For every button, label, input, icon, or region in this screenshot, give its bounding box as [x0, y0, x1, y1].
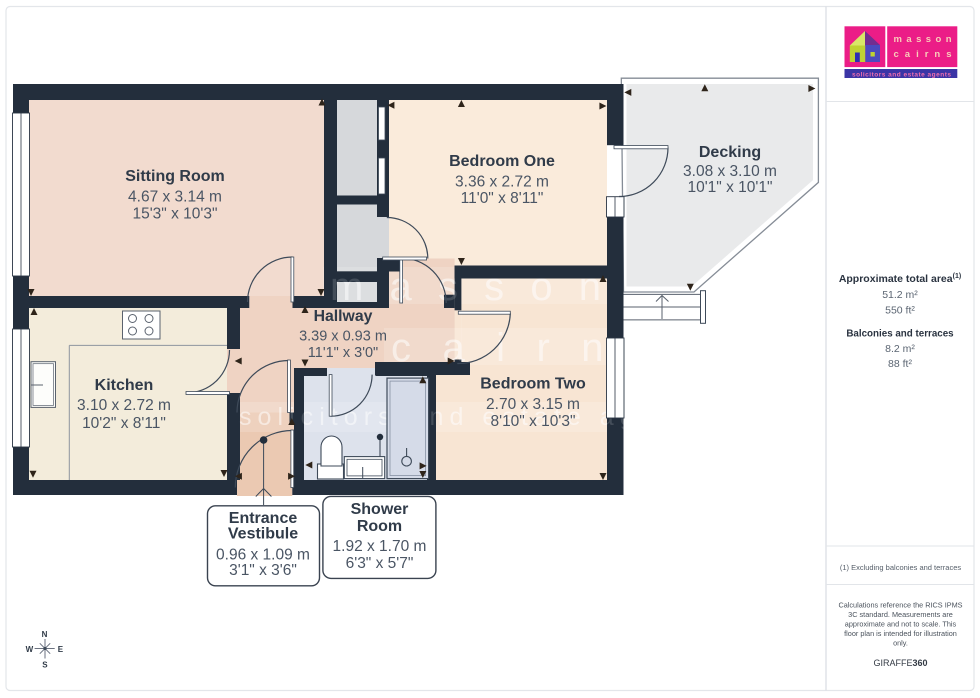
svg-text:Vestibule: Vestibule: [228, 526, 298, 543]
svg-text:Shower: Shower: [351, 501, 409, 518]
svg-text:6'3" x 5'7": 6'3" x 5'7": [346, 555, 414, 572]
svg-text:solicitors and estate agents: solicitors and estate agents: [852, 71, 951, 78]
svg-text:Decking: Decking: [699, 144, 761, 161]
svg-text:W: W: [26, 645, 34, 654]
svg-text:3'1" x 3'6": 3'1" x 3'6": [229, 562, 297, 579]
svg-text:11'0" x 8'11": 11'0" x 8'11": [461, 190, 544, 207]
svg-text:550 ft²: 550 ft²: [885, 305, 915, 317]
svg-text:51.2 m²: 51.2 m²: [882, 289, 918, 301]
svg-text:S: S: [42, 661, 48, 670]
svg-text:floor plan is intended for ill: floor plan is intended for illustration: [844, 629, 957, 638]
svg-text:Sitting Room: Sitting Room: [125, 168, 225, 185]
svg-text:8.2 m²: 8.2 m²: [885, 343, 915, 355]
svg-text:8'10" x 10'3": 8'10" x 10'3": [490, 413, 575, 430]
svg-text:3.36 x 2.72 m: 3.36 x 2.72 m: [455, 174, 549, 191]
svg-text:N: N: [42, 630, 48, 639]
svg-text:3.39 x 0.93 m: 3.39 x 0.93 m: [299, 329, 387, 345]
svg-text:(1) Excluding balconies and te: (1) Excluding balconies and terraces: [840, 563, 962, 572]
svg-text:10'2" x 8'11": 10'2" x 8'11": [82, 415, 166, 432]
svg-text:only.: only.: [893, 639, 908, 648]
svg-text:approximate and not to scale.: approximate and not to scale. This: [845, 620, 957, 629]
svg-text:Bedroom One: Bedroom One: [449, 153, 555, 170]
svg-text:4.67 x 3.14 m: 4.67 x 3.14 m: [128, 189, 222, 206]
svg-text:Approximate total area(1): Approximate total area(1): [839, 273, 961, 285]
svg-text:0.96 x 1.09 m: 0.96 x 1.09 m: [216, 546, 310, 563]
svg-text:10'1" x 10'1": 10'1" x 10'1": [687, 179, 772, 196]
svg-text:11'1" x 3'0": 11'1" x 3'0": [308, 345, 378, 361]
svg-text:Calculations reference the RIC: Calculations reference the RICS IPMS: [838, 601, 962, 610]
svg-text:3.08 x 3.10 m: 3.08 x 3.10 m: [683, 163, 777, 180]
svg-text:Kitchen: Kitchen: [95, 377, 154, 394]
svg-text:GIRAFFE360: GIRAFFE360: [873, 658, 927, 668]
svg-text:3.10 x 2.72 m: 3.10 x 2.72 m: [77, 397, 171, 414]
svg-text:E: E: [58, 645, 64, 654]
svg-text:Hallway: Hallway: [314, 308, 373, 325]
svg-text:Balconies and terraces: Balconies and terraces: [846, 329, 954, 340]
svg-text:3C standard. Measurements are: 3C standard. Measurements are: [848, 610, 953, 619]
svg-text:Room: Room: [357, 518, 402, 535]
svg-text:Bedroom Two: Bedroom Two: [480, 376, 586, 393]
svg-text:15'3" x 10'3": 15'3" x 10'3": [132, 206, 217, 223]
svg-text:1.92 x 1.70 m: 1.92 x 1.70 m: [333, 538, 427, 555]
svg-text:88 ft²: 88 ft²: [888, 358, 912, 370]
svg-text:2.70 x 3.15 m: 2.70 x 3.15 m: [486, 396, 580, 413]
